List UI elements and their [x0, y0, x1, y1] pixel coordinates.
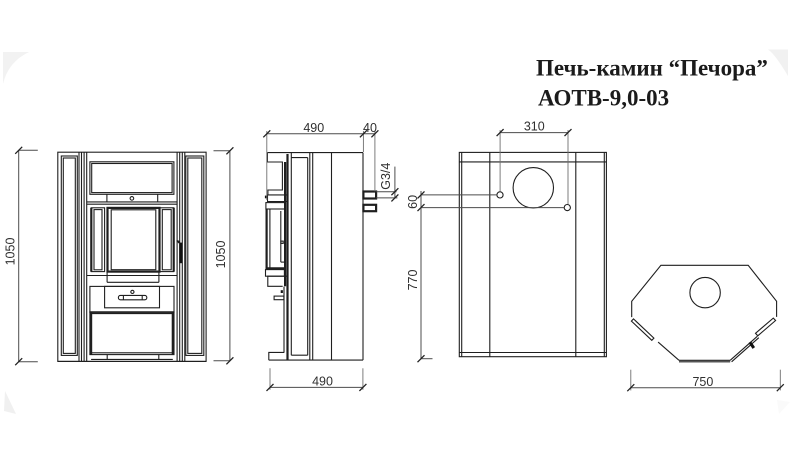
svg-text:1050: 1050 [4, 238, 18, 266]
svg-text:310: 310 [524, 120, 545, 134]
svg-text:490: 490 [312, 375, 333, 389]
svg-text:40: 40 [363, 121, 377, 135]
svg-text:АОТВ-9,0-03: АОТВ-9,0-03 [538, 86, 669, 111]
svg-text:750: 750 [692, 375, 713, 389]
svg-text:G3/4: G3/4 [379, 163, 393, 190]
svg-text:490: 490 [303, 121, 324, 135]
svg-text:60: 60 [406, 195, 420, 209]
svg-text:770: 770 [406, 270, 420, 291]
svg-text:1050: 1050 [214, 241, 228, 269]
svg-text:Печь-камин “Печора”: Печь-камин “Печора” [536, 56, 768, 81]
